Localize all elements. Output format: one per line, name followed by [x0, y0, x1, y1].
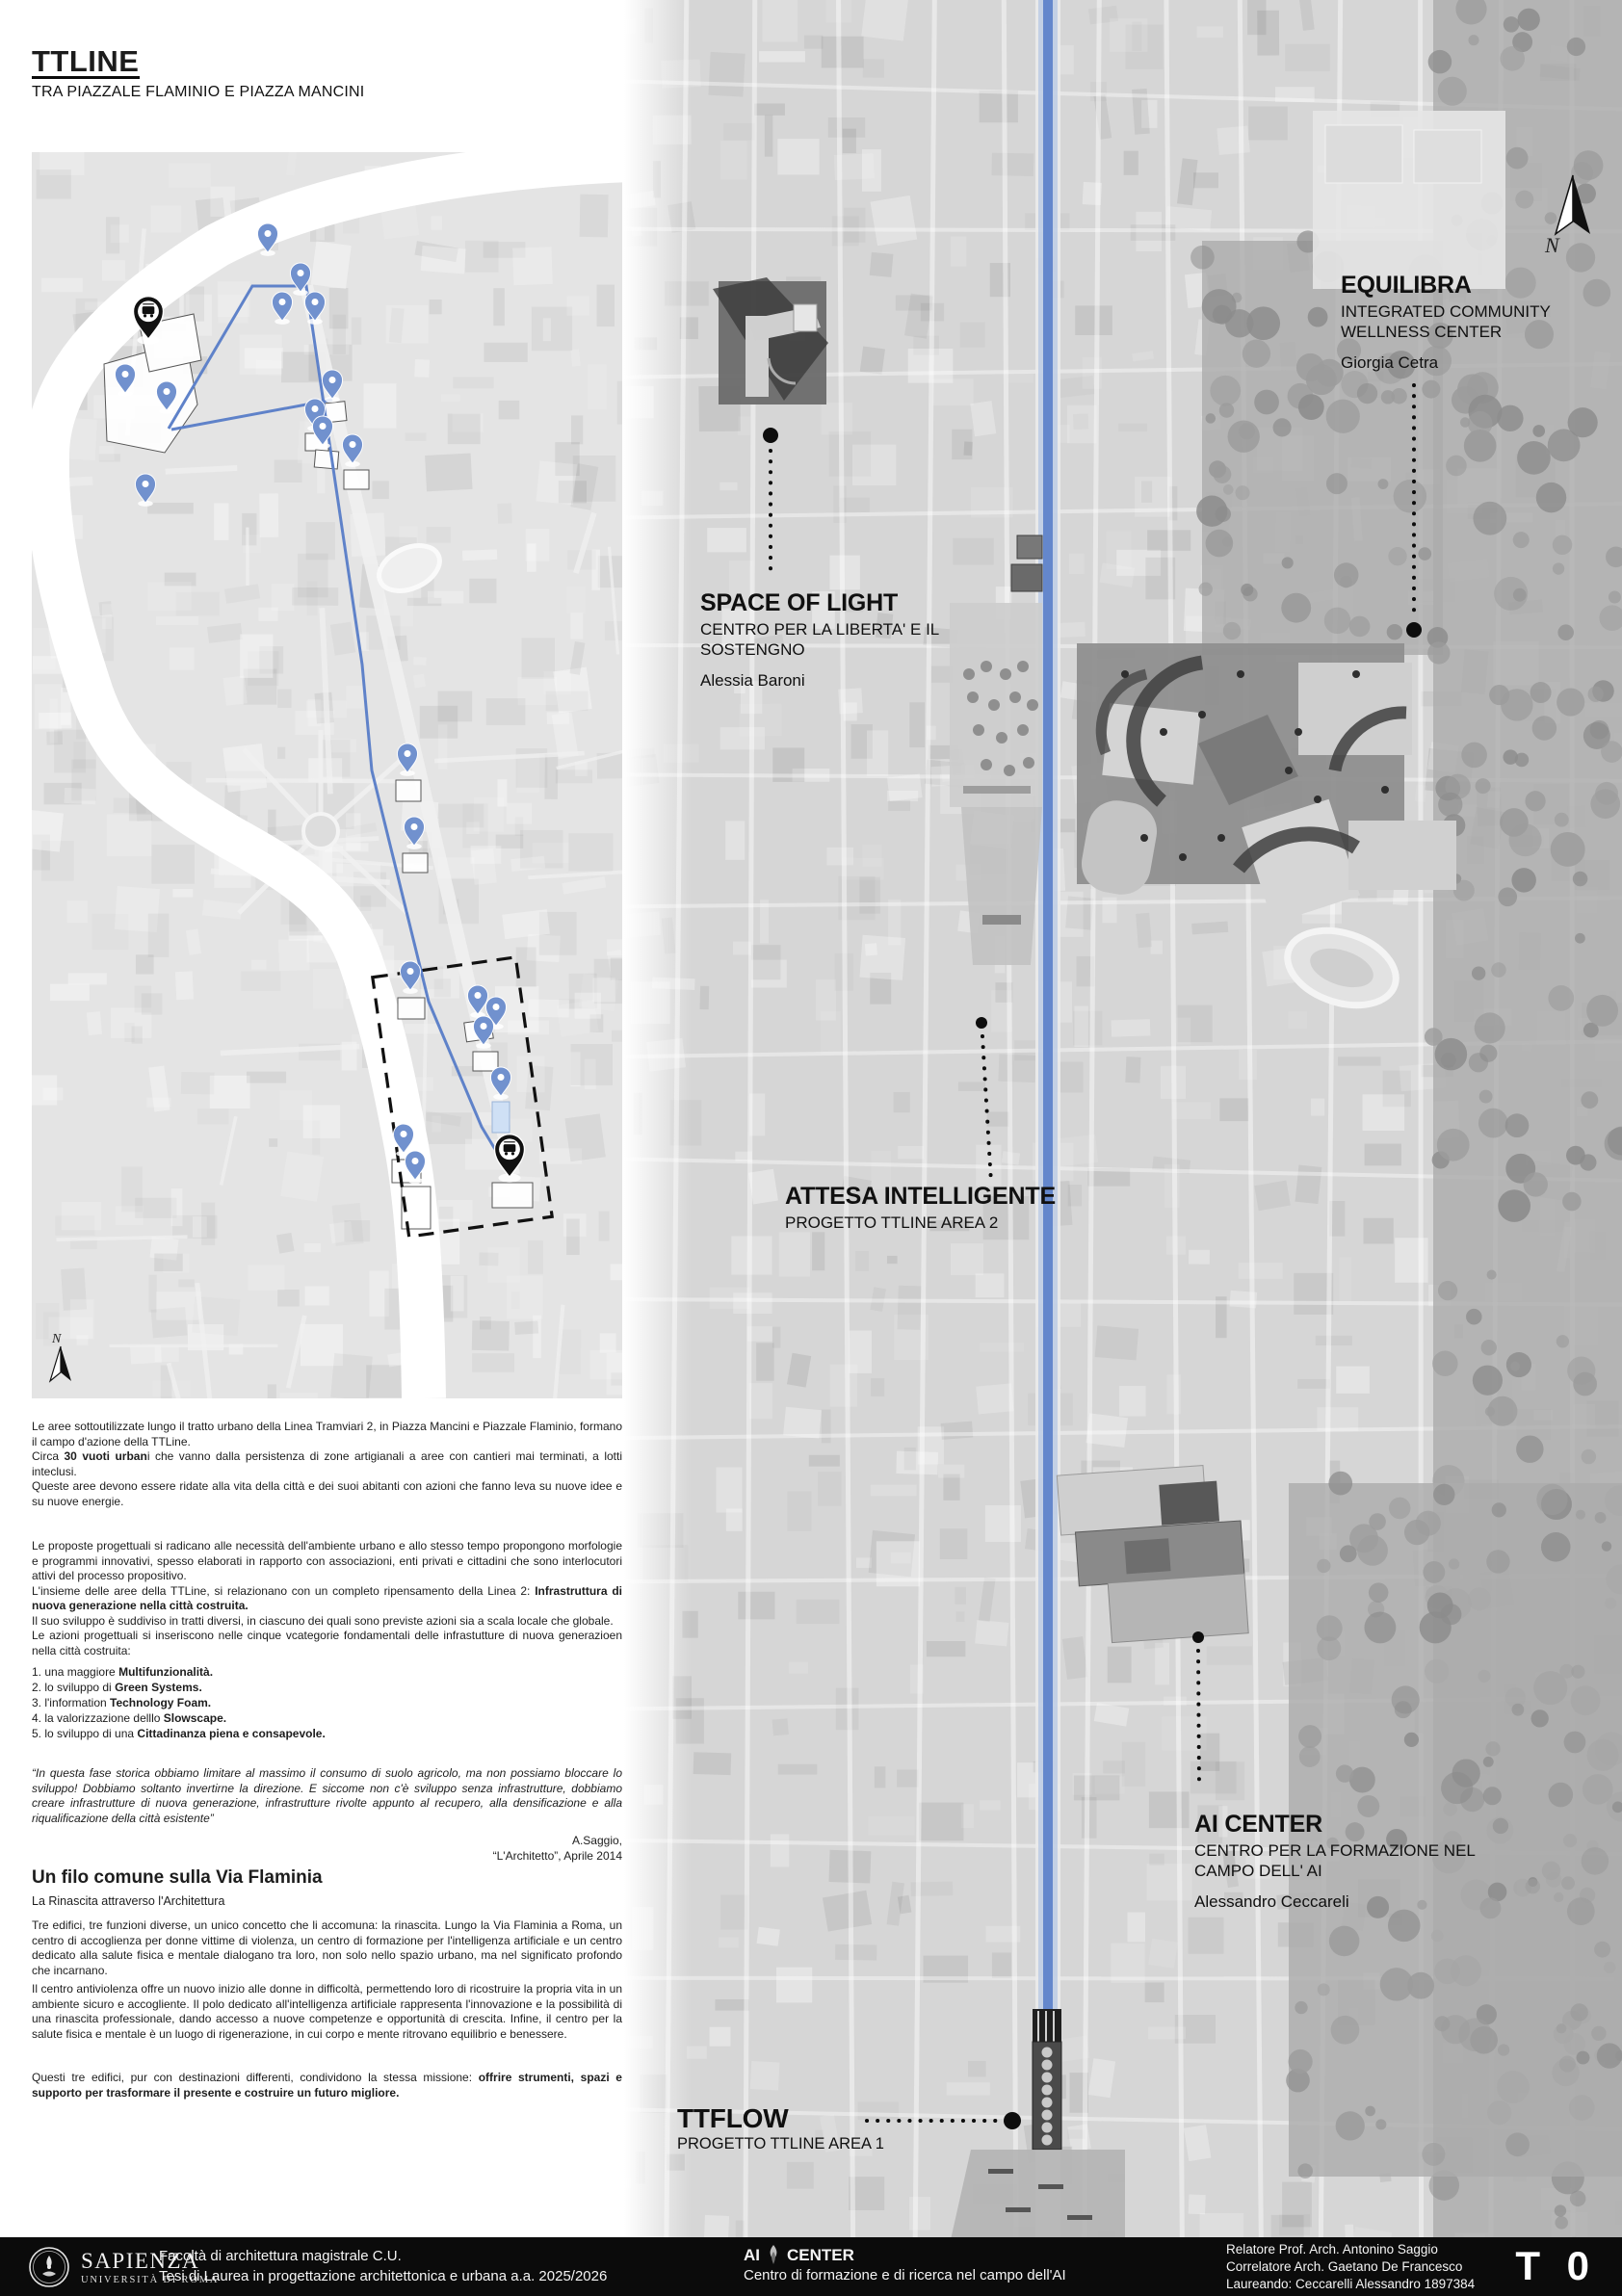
list-item: 3. l'information Technology Foam. [32, 1695, 622, 1710]
project-author: Giorgia Cetra [1341, 353, 1564, 373]
intro-p1: Le aree sottoutilizzate lungo il tratto … [32, 1420, 622, 1448]
project-title: TTFLOW [677, 2105, 966, 2133]
essay-p3: Questi tre edifici, pur con destinazioni… [32, 2071, 622, 2100]
equilibra-plan [1077, 643, 1456, 924]
ttline-plan-map: N [32, 152, 622, 1398]
page-subtitle: TRA PIAZZALE FLAMINIO E PIAZZA MANCINI [32, 84, 364, 101]
footer-bar: SAPIENZA UNIVERSITÀ DI ROMA Facoltà di a… [0, 2237, 1622, 2296]
project-title: EQUILIBRA [1341, 274, 1564, 299]
faculty-info: Facoltà di architettura magistrale C.U. … [159, 2246, 607, 2286]
list-item: 1. una maggiore Multifunzionalità. [32, 1664, 622, 1680]
quote-text: “In questa fase storica obbiamo limitare… [32, 1766, 622, 1826]
footer-project-subtitle: Centro di formazione e di ricerca nel ca… [744, 2265, 1066, 2285]
sheet-number: T 0 [1515, 2243, 1597, 2289]
project-author: Alessia Baroni [700, 671, 981, 691]
list-item: 4. la valorizzazione delllo Slowscape. [32, 1710, 622, 1726]
list-item: 2. lo sviluppo di Green Systems. [32, 1680, 622, 1695]
essay-subheading: La Rinascita attraverso l'Architettura [32, 1894, 622, 1910]
label-equilibra: EQUILIBRA INTEGRATED COMMUNITY WELLNESS … [1341, 274, 1564, 373]
space-of-light-plan [713, 277, 828, 404]
intro-paragraphs: Le aree sottoutilizzate lungo il tratto … [32, 1420, 622, 1509]
label-space-of-light: SPACE OF LIGHT CENTRO PER LA LIBERTA' E … [700, 591, 981, 691]
project-author: Alessandro Ceccareli [1194, 1892, 1493, 1912]
project-subtitle: CENTRO PER LA LIBERTA' E IL SOSTENGNO [700, 619, 981, 660]
essay-p2: Il centro antiviolenza offre un nuovo in… [32, 1982, 622, 2042]
proposals-p1: Le proposte progettuali si radicano alle… [32, 1539, 622, 1582]
project-subtitle: INTEGRATED COMMUNITY WELLNESS CENTER [1341, 301, 1564, 342]
credits: Relatore Prof. Arch. Antonino Saggio Cor… [1226, 2241, 1475, 2293]
label-attesa-intelligente: ATTESA INTELLIGENTE PROGETTO TTLINE AREA… [785, 1185, 1093, 1233]
project-subtitle: CENTRO PER LA FORMAZIONE NEL CAMPO DELL'… [1194, 1840, 1493, 1881]
page-title: TTLINE [32, 46, 140, 79]
quote-source: “L'Architetto”, Aprile 2014 [32, 1849, 622, 1865]
ttflow-site [492, 1102, 510, 1133]
proposals-p3: Il suo sviluppo è suddiviso in tratti di… [32, 1614, 614, 1628]
project-title: ATTESA INTELLIGENTE [785, 1185, 1093, 1210]
essay-p1: Tre edifici, tre funzioni diverse, un un… [32, 1918, 622, 1978]
quote-block: “In questa fase storica obbiamo limitare… [32, 1766, 622, 1826]
intro-p3: Queste aree devono essere ridate alla vi… [32, 1479, 622, 1508]
project-subtitle: PROGETTO TTLINE AREA 2 [785, 1213, 1093, 1233]
project-title: SPACE OF LIGHT [700, 591, 981, 616]
essay-heading: Un filo comune sulla Via Flaminia [32, 1868, 622, 1889]
title-block: TTLINE TRA PIAZZALE FLAMINIO E PIAZZA MA… [32, 46, 364, 101]
project-subtitle: PROGETTO TTLINE AREA 1 [677, 2134, 966, 2154]
ttline-plan-graphic: N [32, 152, 622, 1398]
list-item: 5. lo sviluppo di una Cittadinanza piena… [32, 1726, 622, 1741]
ai-center-logo-icon [766, 2244, 781, 2265]
category-list: 1. una maggiore Multifunzionalità. 2. lo… [32, 1664, 622, 1741]
label-ttflow: TTFLOW PROGETTO TTLINE AREA 1 [677, 2105, 966, 2154]
footer-project-info: AI CENTER Centro di formazione e di rice… [744, 2244, 1066, 2285]
thesis-board: N EQUILIBRA INTEGRATED COMMUNITY WELLNES… [0, 0, 1622, 2296]
project-title: AI CENTER [1194, 1813, 1493, 1838]
sapienza-emblem-icon [27, 2245, 71, 2289]
proposal-paragraphs: Le proposte progettuali si radicano alle… [32, 1539, 622, 1658]
quote-attribution: A.Saggio, “L'Architetto”, Aprile 2014 [32, 1834, 622, 1864]
svg-text:N: N [1544, 233, 1560, 257]
svg-text:N: N [51, 1332, 62, 1346]
quote-author: A.Saggio, [32, 1834, 622, 1849]
essay-heading-block: Un filo comune sulla Via Flaminia La Rin… [32, 1868, 622, 1909]
proposals-p4: Le azioni progettuali si inseriscono nel… [32, 1629, 622, 1657]
label-ai-center: AI CENTER CENTRO PER LA FORMAZIONE NEL C… [1194, 1813, 1493, 1912]
